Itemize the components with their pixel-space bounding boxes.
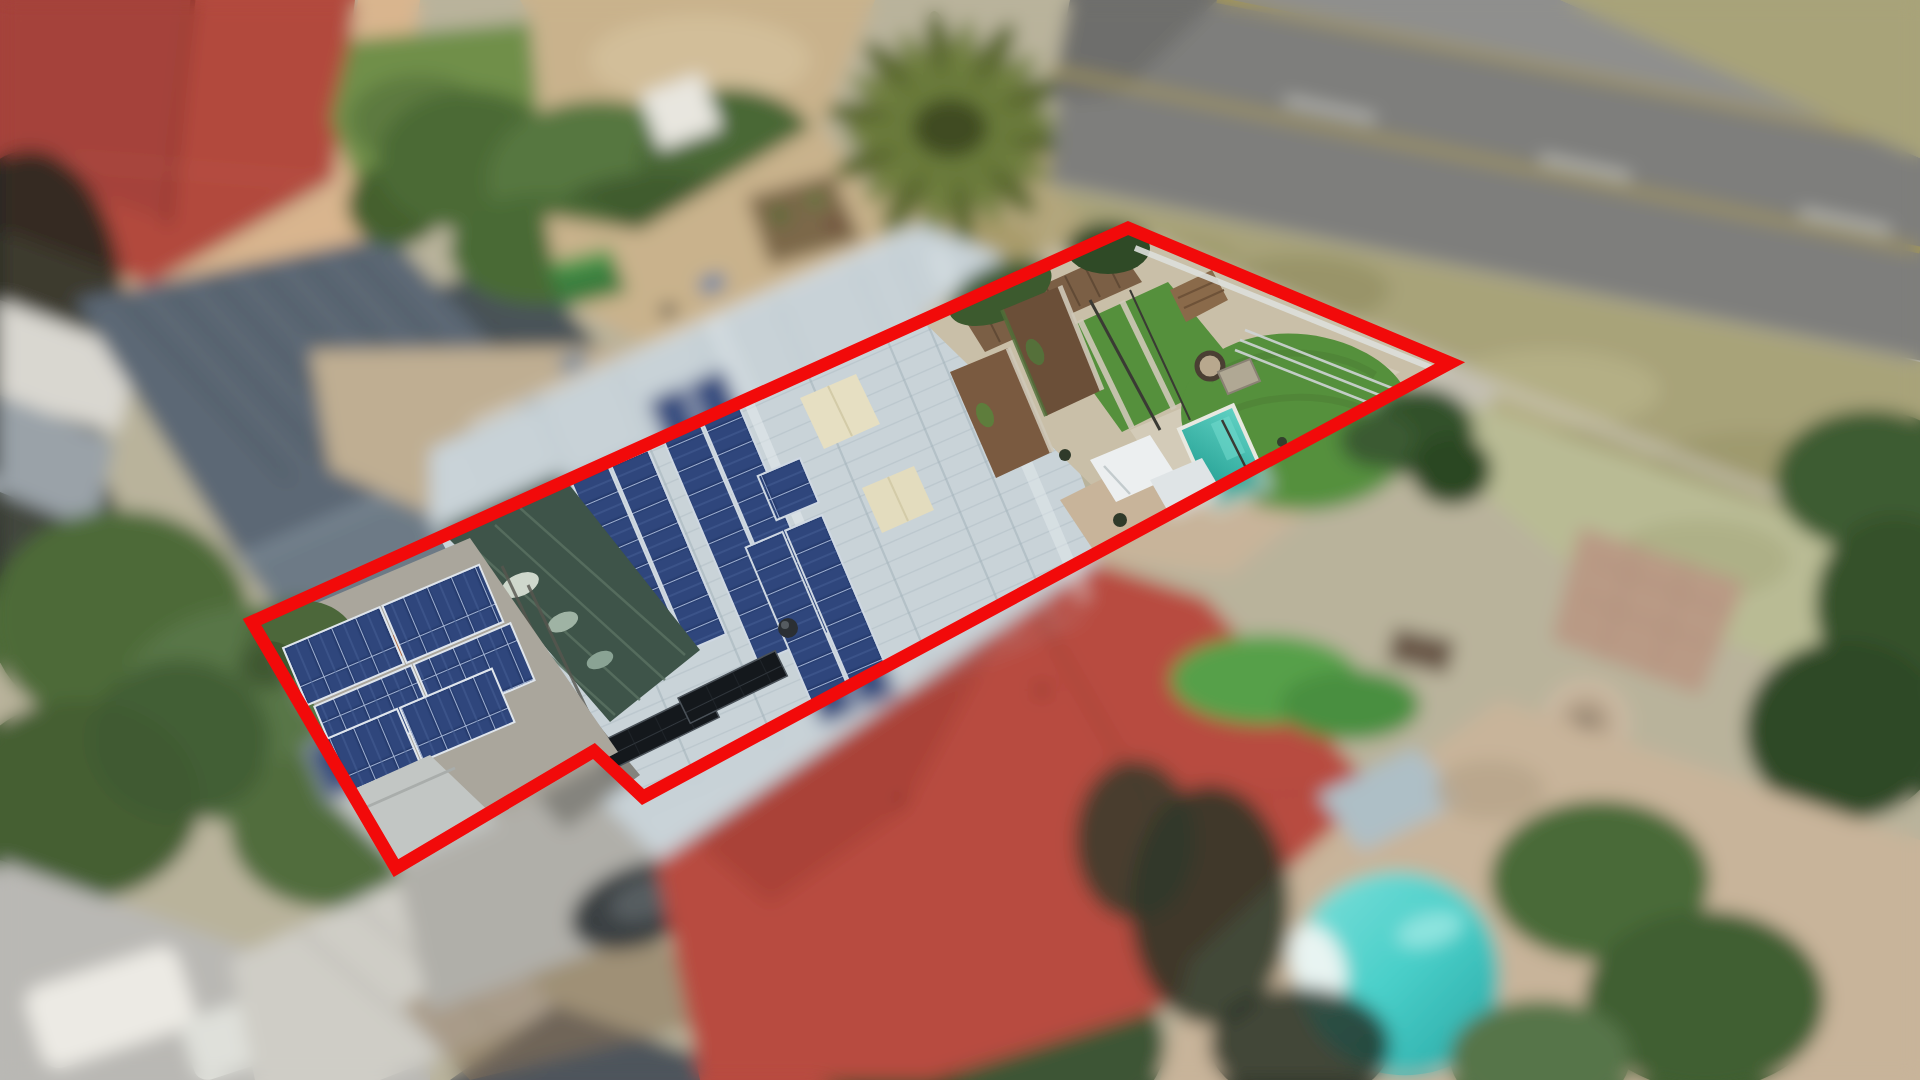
- screenshot-root: [0, 0, 1920, 1080]
- aerial-photo: [0, 0, 1920, 1080]
- potted-plant: [1113, 513, 1127, 527]
- flue-pot-highlight: [781, 621, 789, 629]
- potted-plant: [1059, 449, 1071, 461]
- flue-pot: [778, 618, 798, 638]
